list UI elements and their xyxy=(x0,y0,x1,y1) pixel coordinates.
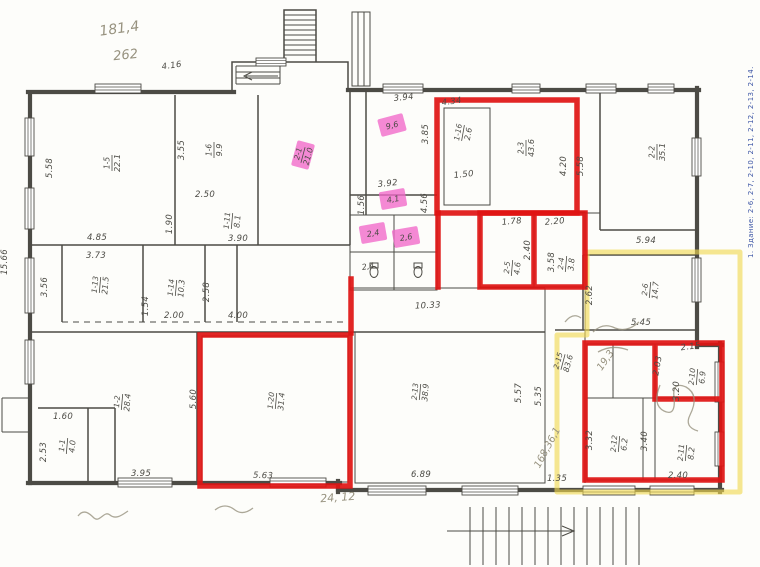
dimension-label: 1.54 xyxy=(141,296,151,316)
room-label: 9,6 xyxy=(377,113,407,137)
side-stoop xyxy=(2,398,28,432)
room-number: 1-13 xyxy=(90,275,100,293)
room-number: 2-11 xyxy=(676,444,686,462)
window-symbol xyxy=(462,486,518,495)
room-number: 2-6 xyxy=(640,283,650,296)
dimension-label: 2.62 xyxy=(585,285,595,305)
window-symbol xyxy=(95,84,141,93)
dimension-label: 5.63 xyxy=(253,471,273,482)
room-label: 1-1321.5 xyxy=(90,275,111,294)
room-area: 14.7 xyxy=(650,280,661,299)
toilet-icon xyxy=(414,263,422,278)
room-label: 1-1410.3 xyxy=(166,278,187,297)
window-symbol xyxy=(25,118,34,156)
dimension-label: 5.58 xyxy=(576,156,586,176)
room-label: 2-118.2 xyxy=(676,444,697,463)
dimension-label: 2.03 xyxy=(651,355,664,377)
room-area: 22.1 xyxy=(113,154,122,172)
room-label: 2-126.2 xyxy=(609,434,630,453)
dimension-label: 3.55 xyxy=(177,140,187,160)
window-symbol xyxy=(648,84,674,93)
room-number: 2-10 xyxy=(687,367,697,385)
room-number: 1-1 xyxy=(57,439,67,452)
dimension-label: 3.85 xyxy=(421,124,431,144)
dimension-label: 4.16 xyxy=(161,60,183,73)
dimension-label: 3.92 xyxy=(377,178,398,190)
dimension-label: 2.20 xyxy=(544,216,565,228)
dimension-label: 3.56 xyxy=(40,277,50,297)
side-note-blue: 1. Здание: 2-6, 2-7, 2-10, 2-11, 2-12, 2… xyxy=(747,66,755,258)
room-area: 21.5 xyxy=(100,276,111,295)
dimension-label: 1.60 xyxy=(53,412,73,422)
dimension-label: 4.56 xyxy=(420,193,430,213)
room-number: 2-5 xyxy=(502,261,512,274)
room-number: 2-12 xyxy=(609,434,619,452)
window-symbol xyxy=(25,258,34,313)
window-symbol xyxy=(383,84,423,93)
window-symbol xyxy=(118,478,172,487)
dimension-label: 3.20 xyxy=(672,381,682,401)
room-area: 10.3 xyxy=(176,279,187,298)
room-label: 2-1338.9 xyxy=(410,382,431,401)
room-area: 8.1 xyxy=(232,215,242,228)
window-symbols xyxy=(25,58,724,495)
dimension-label: 5.45 xyxy=(631,318,651,328)
room-area: 4.0 xyxy=(67,440,77,453)
handwritten-note: 181,4 xyxy=(98,18,140,39)
floor-plan-svg: 4.163.944.345.583.555.584.203.851.504.85… xyxy=(0,0,760,567)
room-label: 2-54.6 xyxy=(502,259,523,277)
room-label: 2-614.7 xyxy=(640,279,661,299)
room-area: 35.1 xyxy=(658,143,667,161)
room-number: 1-2 xyxy=(112,395,122,408)
window-symbol xyxy=(692,258,701,302)
dimension-label: 5.58 xyxy=(45,158,55,178)
room-area: 3.8 xyxy=(566,258,576,271)
room-number: 1-6 xyxy=(205,144,214,156)
room-number: 2-13 xyxy=(410,382,420,400)
dimension-label: 2.00 xyxy=(164,311,184,321)
room-number: 1-20 xyxy=(266,391,276,409)
room-label: 2-235.1 xyxy=(648,143,668,161)
dimension-label: 2.40 xyxy=(523,240,533,260)
dimension-label: 1.50 xyxy=(453,169,474,181)
dimension-label: 3.90 xyxy=(228,234,248,244)
dimension-label: 5.60 xyxy=(189,389,199,409)
dimension-label: 2.50 xyxy=(195,190,215,200)
room-number: 2-2 xyxy=(648,146,657,158)
room-area: 6.9 xyxy=(697,371,707,384)
dimension-label: 2.40 xyxy=(668,471,688,481)
interior-walls xyxy=(30,90,720,483)
window-symbol xyxy=(512,84,540,93)
dimension-label: 15.66 xyxy=(0,249,10,275)
room-number: 2-3 xyxy=(517,142,526,154)
dimension-label: 4.34 xyxy=(441,96,462,109)
room-label: 2-343.6 xyxy=(517,139,537,157)
red-outline-room-2-3 xyxy=(437,100,577,213)
window-symbol xyxy=(25,340,34,384)
handwritten-note: 262 xyxy=(113,47,139,65)
toilet-icons xyxy=(370,263,422,278)
room-number: 1-14 xyxy=(166,278,176,296)
window-symbol xyxy=(368,486,426,495)
dimension-label: 5.94 xyxy=(636,236,656,246)
room-label: 1-522.1 xyxy=(103,154,123,172)
dimension-label: 2.58 xyxy=(202,282,212,302)
dimension-label: 6.89 xyxy=(411,470,431,480)
room-number: 1-11 xyxy=(222,212,232,230)
room-label: 2,4 xyxy=(359,222,388,244)
room-area: 28.4 xyxy=(122,393,133,412)
room-label: 2,4 xyxy=(361,261,375,272)
room-number: 1-5 xyxy=(103,157,112,169)
dimension-label: 3.32 xyxy=(585,430,595,450)
dimension-label: 3.94 xyxy=(393,92,414,104)
dimension-label: 2.53 xyxy=(39,442,49,462)
room-label: 4,1 xyxy=(379,188,408,210)
entrance-porch xyxy=(447,507,639,565)
room-area: 43.6 xyxy=(527,139,536,157)
dimension-label: 4.20 xyxy=(559,156,569,176)
room-label: 1-162.6 xyxy=(452,123,474,143)
dimension-label: 10.33 xyxy=(415,300,441,311)
red-outline-room-1-20 xyxy=(200,335,350,486)
room-area: 8.2 xyxy=(686,447,696,460)
staircase-top xyxy=(232,10,370,92)
dimension-label: 3.40 xyxy=(640,431,650,451)
dimension-label: 5.35 xyxy=(534,386,544,406)
room-label: 2,6 xyxy=(392,226,421,248)
window-symbol xyxy=(25,188,34,229)
room-number: 2-4 xyxy=(556,257,566,270)
window-symbol xyxy=(256,58,286,66)
room-label: 2-106.9 xyxy=(687,367,708,386)
room-label: 1-2031.4 xyxy=(266,391,287,410)
dimension-label: 1.35 xyxy=(547,474,567,484)
room-area: 38.9 xyxy=(420,383,431,402)
room-area: 6.2 xyxy=(619,438,629,451)
dimension-label: 2.15 xyxy=(680,341,701,354)
dimension-label: 3.95 xyxy=(131,469,151,479)
room-label: 2-43.8 xyxy=(556,255,577,273)
room-area: 2,4 xyxy=(361,261,375,272)
entrance-arrow xyxy=(447,526,574,536)
room-area: 31.4 xyxy=(276,392,287,411)
dimension-label: 4.00 xyxy=(228,311,248,321)
room-label: 1-118.1 xyxy=(222,212,243,231)
dimension-label: 5.57 xyxy=(514,383,524,403)
room-area: 4.6 xyxy=(512,262,522,275)
room-area: 2.6 xyxy=(463,127,474,141)
window-symbol xyxy=(586,84,616,93)
dimension-label: 4.85 xyxy=(87,233,107,243)
room-label: 2-121.0 xyxy=(290,140,316,170)
dimension-label: 3.73 xyxy=(86,251,106,261)
dimension-label: 1.56 xyxy=(357,195,367,215)
window-symbol xyxy=(692,138,701,176)
room-label: 1-69.9 xyxy=(205,142,225,158)
dimension-label: 1.78 xyxy=(501,216,522,228)
floor-plan-scan: 4.163.944.345.583.555.584.203.851.504.85… xyxy=(0,0,760,567)
handwritten-note: 24, 12 xyxy=(320,490,356,505)
dimension-label: 1.90 xyxy=(165,214,175,234)
room-area: 9.9 xyxy=(215,144,224,157)
room-label: 1-14.0 xyxy=(57,437,78,455)
